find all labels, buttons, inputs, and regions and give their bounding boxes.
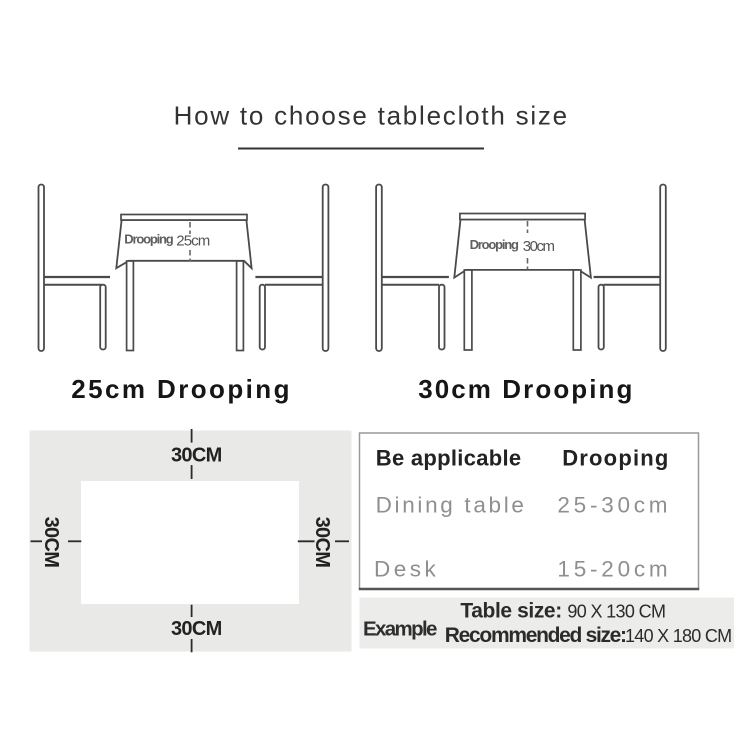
svg-text:Recommended size:: Recommended size: [445, 624, 626, 647]
svg-text:Be applicable: Be applicable [376, 445, 522, 470]
svg-text:30CM: 30CM [171, 445, 222, 467]
svg-text:25-30cm: 25-30cm [557, 493, 671, 518]
svg-text:25cm: 25cm [176, 233, 209, 250]
svg-text:How to choose tablecloth size: How to choose tablecloth size [174, 101, 569, 131]
svg-text:140 X 180 CM: 140 X 180 CM [625, 626, 731, 646]
svg-text:30cm Drooping: 30cm Drooping [418, 374, 634, 404]
svg-text:30cm: 30cm [523, 238, 555, 255]
svg-text:Table size:: Table size: [460, 599, 561, 622]
svg-text:30CM: 30CM [171, 618, 222, 640]
svg-text:Drooping: Drooping [470, 237, 519, 252]
svg-text:Example: Example [363, 618, 437, 641]
svg-text:Desk: Desk [374, 557, 439, 582]
svg-text:Dining table: Dining table [376, 493, 527, 518]
svg-text:Drooping: Drooping [124, 232, 173, 247]
svg-text:25cm Drooping: 25cm Drooping [71, 374, 292, 404]
svg-text:30CM: 30CM [40, 517, 62, 568]
svg-text:Drooping: Drooping [562, 445, 669, 470]
svg-text:30CM: 30CM [311, 517, 333, 568]
svg-text:90 X 130 CM: 90 X 130 CM [567, 601, 665, 621]
svg-text:15-20cm: 15-20cm [557, 557, 671, 582]
